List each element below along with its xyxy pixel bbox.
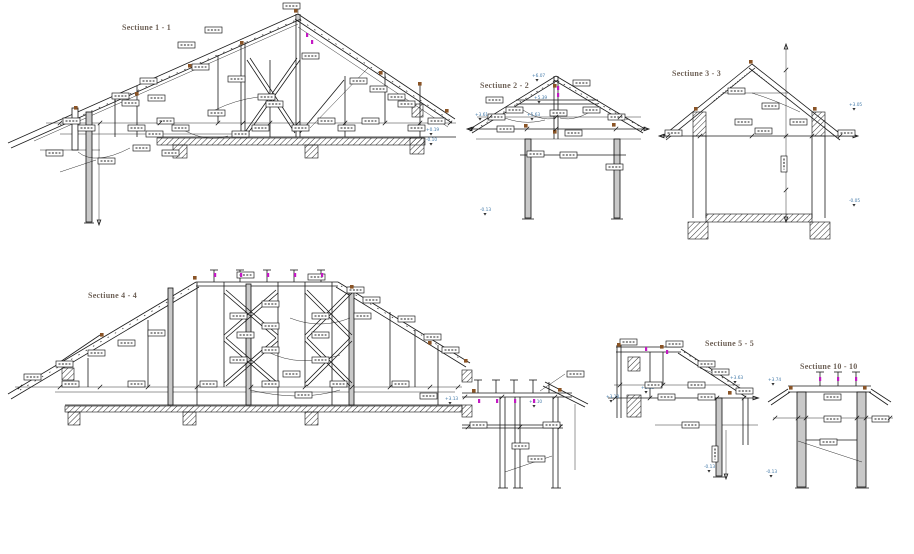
porch-extension [462,374,588,488]
cad-drawing-svg: Sectiune 1 - 1 [0,0,914,554]
svg-text:+3.10: +3.10 [529,399,542,405]
svg-text:-0.05: -0.05 [849,198,860,204]
section-10-10: Sectiune 10 - 10 [768,362,893,488]
svg-text:+3.13: +3.13 [445,396,458,402]
svg-text:-0.13: -0.13 [766,469,777,475]
drawing-canvas: Sectiune 1 - 1 [0,0,914,554]
section-3-3: Sectiune 3 - 3 [659,44,858,239]
svg-text:-0.13: -0.13 [480,207,491,213]
svg-text:+3.61: +3.61 [475,112,488,118]
svg-text:-0.10: -0.10 [426,137,437,143]
section-4-4-title: Sectiune 4 - 4 [88,291,137,300]
section-4-4: Sectiune 4 - 4 [8,270,588,488]
svg-text:+3.18: +3.18 [606,394,619,400]
section-1-1: Sectiune 1 - 1 [8,7,456,225]
svg-text:+5.63: +5.63 [527,112,540,118]
svg-text:-0.13: -0.13 [704,464,715,470]
section-10-10-title: Sectiune 10 - 10 [800,362,858,371]
svg-text:+3.05: +3.05 [849,102,862,108]
svg-text:+0.19: +0.19 [426,127,439,133]
section-2-2-title: Sectiune 2 - 2 [480,81,529,90]
section-5-5-title: Sectiune 5 - 5 [705,339,754,348]
svg-text:+6.07: +6.07 [532,73,545,79]
svg-text:+5.39: +5.39 [534,95,547,101]
dimension-labels [24,3,889,462]
tick-marks [18,68,892,429]
svg-text:+3.63: +3.63 [730,375,743,381]
section-1-1-title: Sectiune 1 - 1 [122,23,171,32]
section-5-5: Sectiune 5 - 5 [608,339,759,479]
section-3-3-title: Sectiune 3 - 3 [672,69,721,78]
svg-text:+3.74: +3.74 [768,377,781,383]
